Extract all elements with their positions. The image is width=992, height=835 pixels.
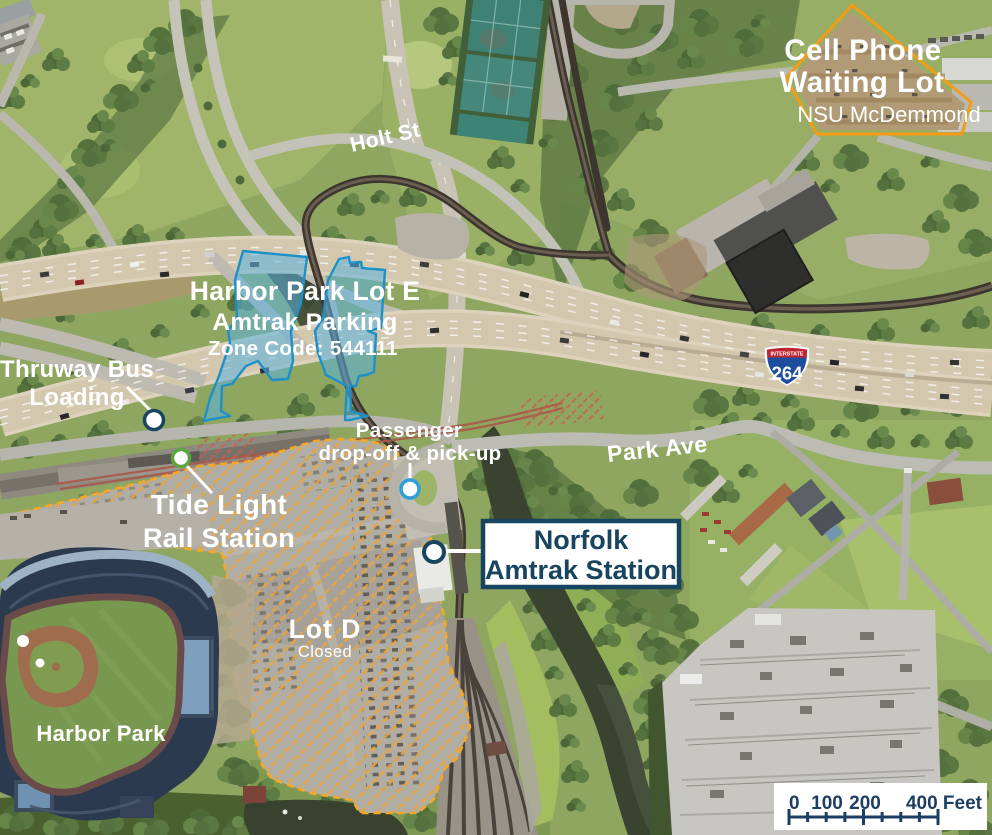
svg-text:Lot D: Lot D (289, 614, 362, 644)
svg-text:Passenger: Passenger (356, 419, 462, 442)
svg-text:Norfolk: Norfolk (534, 525, 629, 555)
svg-text:NSU McDemmond: NSU McDemmond (797, 102, 980, 127)
svg-text:0: 0 (789, 793, 800, 814)
svg-text:264: 264 (772, 363, 804, 384)
svg-text:Harbor Park: Harbor Park (36, 721, 166, 746)
svg-text:Thruway Bus: Thruway Bus (0, 356, 154, 383)
svg-text:INTERSTATE: INTERSTATE (770, 352, 803, 358)
svg-text:Waiting Lot: Waiting Lot (780, 66, 945, 99)
svg-text:Rail Station: Rail Station (143, 523, 295, 553)
svg-text:Amtrak Station: Amtrak Station (485, 555, 677, 585)
svg-text:Cell Phone: Cell Phone (784, 34, 941, 67)
svg-text:Loading: Loading (29, 384, 124, 411)
svg-text:Zone Code: 544111: Zone Code: 544111 (208, 337, 398, 360)
svg-text:drop-off & pick-up: drop-off & pick-up (318, 442, 501, 465)
svg-text:Amtrak Parking: Amtrak Parking (212, 309, 397, 336)
svg-text:Tide Light: Tide Light (151, 489, 287, 520)
svg-text:100: 100 (811, 793, 843, 814)
svg-text:400 Feet: 400 Feet (906, 793, 983, 814)
svg-text:Harbor Park Lot E: Harbor Park Lot E (190, 276, 420, 306)
svg-text:Closed: Closed (298, 643, 352, 661)
